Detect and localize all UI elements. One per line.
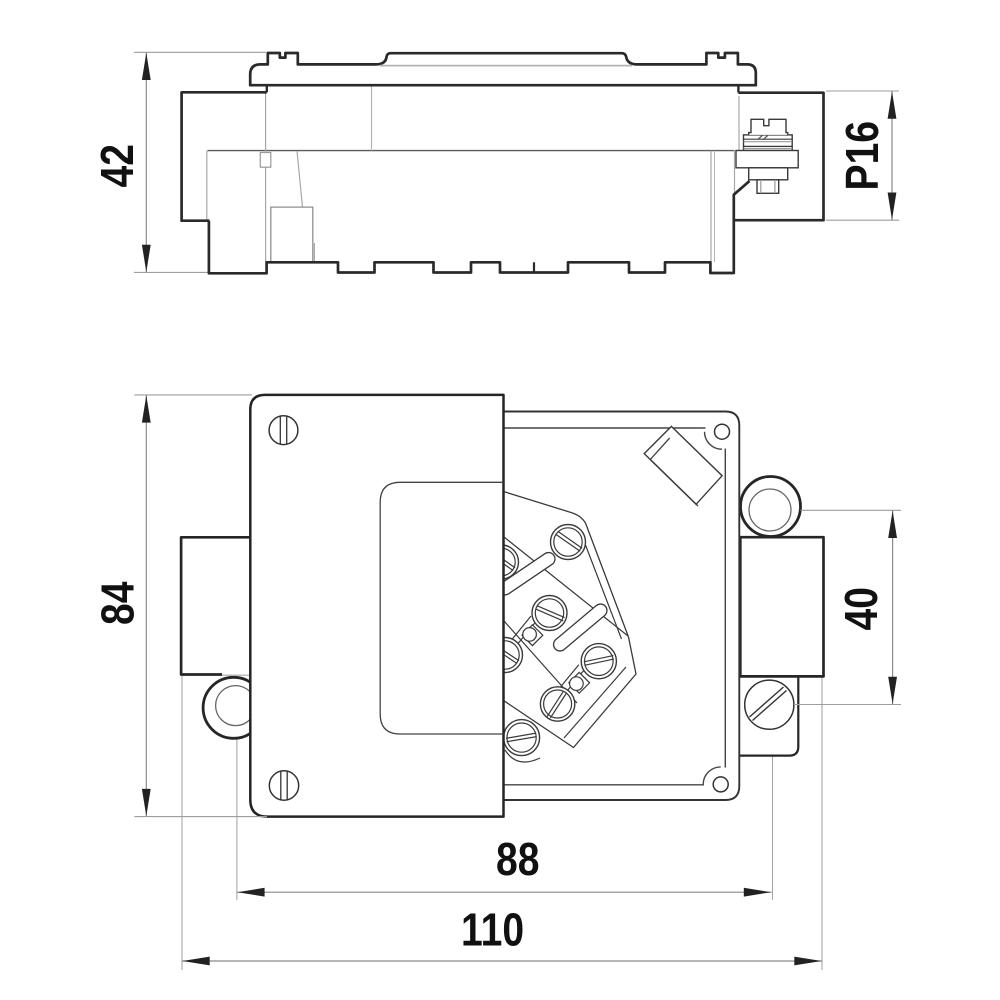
svg-text:88: 88 [496, 834, 539, 886]
svg-text:84: 84 [93, 581, 145, 625]
svg-text:P16: P16 [837, 121, 889, 191]
svg-text:40: 40 [836, 587, 888, 630]
svg-text:110: 110 [461, 905, 524, 957]
svg-text:42: 42 [92, 144, 144, 187]
